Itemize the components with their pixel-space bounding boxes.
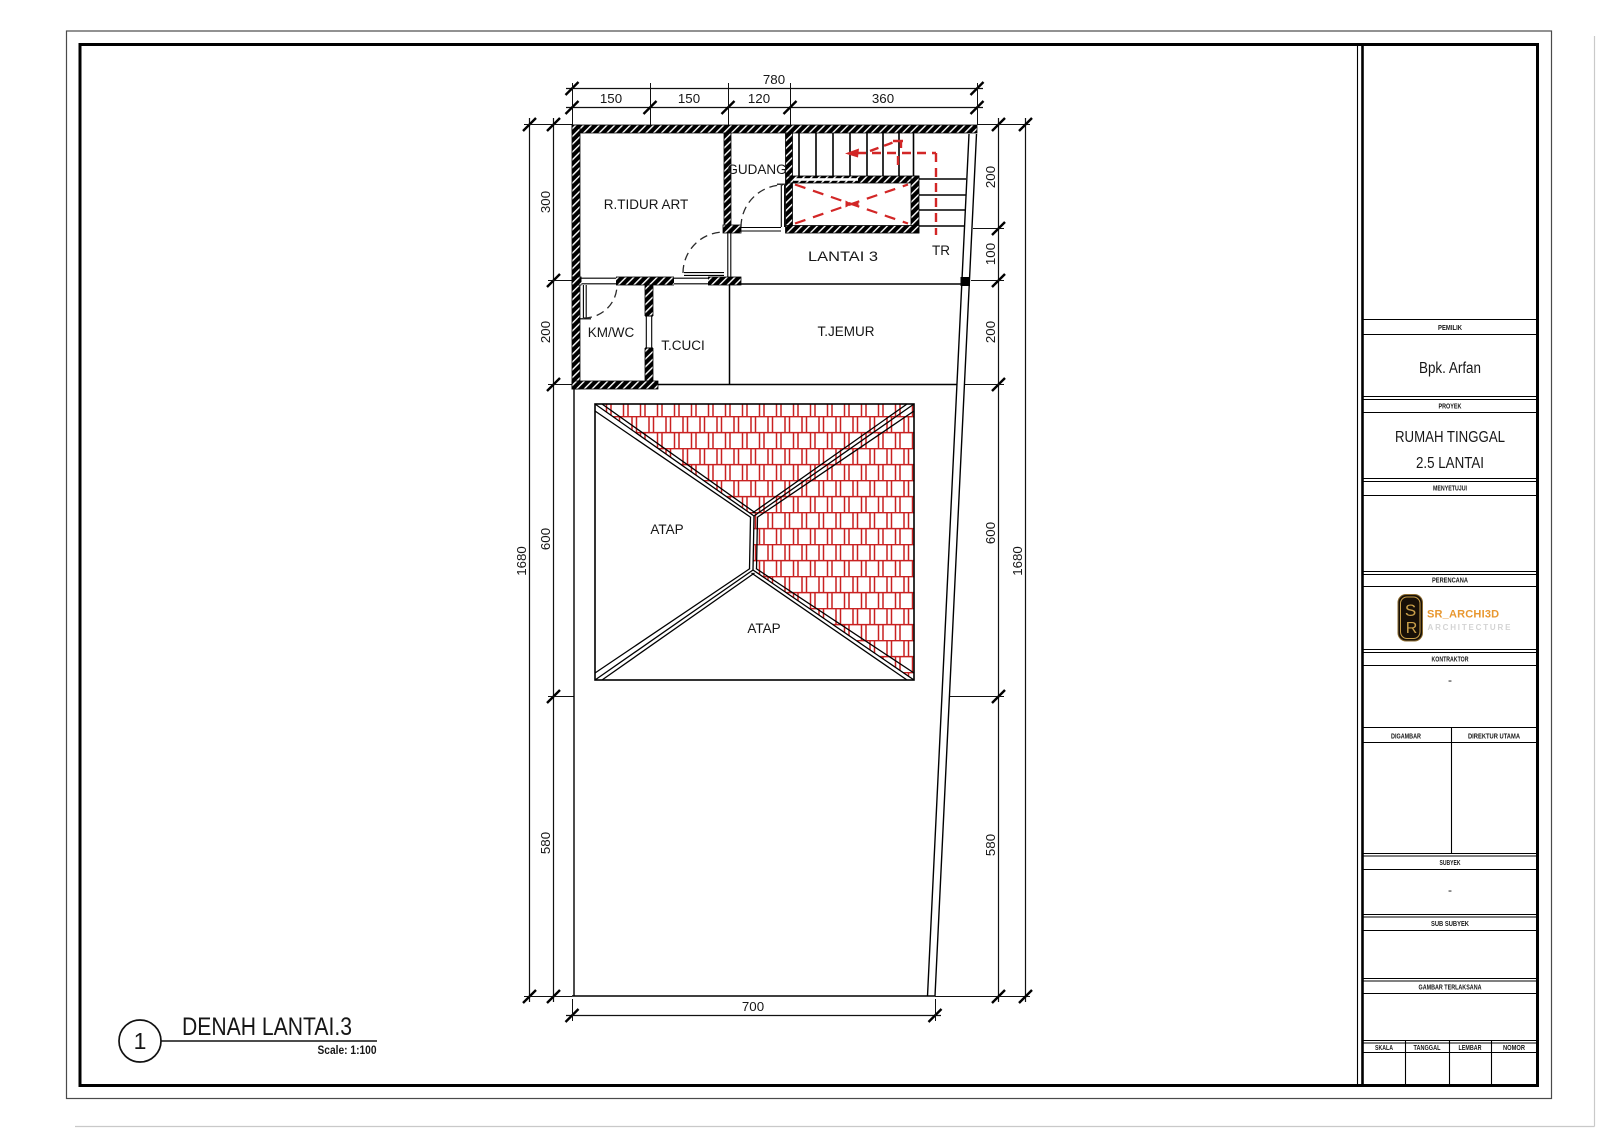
svg-text:T.JEMUR: T.JEMUR	[818, 324, 875, 339]
svg-text:780: 780	[763, 72, 785, 87]
svg-text:NOMOR: NOMOR	[1503, 1043, 1525, 1052]
svg-text:300: 300	[538, 191, 553, 213]
svg-text:TR: TR	[932, 243, 950, 258]
svg-text:1: 1	[134, 1028, 147, 1054]
svg-text:200: 200	[538, 321, 553, 343]
svg-text:SUBYEK: SUBYEK	[1440, 858, 1461, 867]
svg-text:1680: 1680	[1010, 546, 1025, 576]
svg-text:360: 360	[872, 91, 894, 106]
svg-text:KM/WC: KM/WC	[588, 325, 635, 340]
svg-text:-: -	[1448, 673, 1452, 687]
svg-text:DIGAMBAR: DIGAMBAR	[1391, 732, 1421, 741]
svg-text:KONTRAKTOR: KONTRAKTOR	[1432, 655, 1469, 664]
svg-text:T.CUCI: T.CUCI	[661, 338, 705, 353]
svg-text:SKALA: SKALA	[1375, 1043, 1393, 1052]
svg-text:100: 100	[983, 243, 998, 265]
svg-text:700: 700	[742, 999, 764, 1014]
svg-text:ATAP: ATAP	[650, 522, 683, 537]
svg-text:-: -	[1448, 883, 1452, 897]
svg-text:150: 150	[600, 91, 622, 106]
svg-text:2.5 LANTAI: 2.5 LANTAI	[1416, 455, 1484, 472]
svg-text:580: 580	[983, 834, 998, 856]
svg-text:LANTAI 3: LANTAI 3	[808, 249, 878, 264]
svg-text:GAMBAR TERLAKSANA: GAMBAR TERLAKSANA	[1419, 983, 1482, 992]
svg-text:600: 600	[538, 528, 553, 550]
svg-text:MENYETUJUI: MENYETUJUI	[1433, 484, 1467, 493]
svg-text:600: 600	[983, 522, 998, 544]
svg-text:LEMBAR: LEMBAR	[1459, 1043, 1482, 1052]
svg-text:580: 580	[538, 832, 553, 854]
svg-text:PROYEK: PROYEK	[1439, 402, 1462, 411]
svg-text:S: S	[1405, 601, 1416, 620]
svg-text:SUB SUBYEK: SUB SUBYEK	[1431, 919, 1469, 928]
svg-text:120: 120	[748, 91, 770, 106]
svg-text:R.TIDUR ART: R.TIDUR ART	[604, 197, 689, 212]
svg-text:RUMAH TINGGAL: RUMAH TINGGAL	[1395, 429, 1505, 446]
svg-text:DIREKTUR UTAMA: DIREKTUR UTAMA	[1468, 732, 1520, 741]
svg-text:R: R	[1406, 620, 1418, 637]
svg-text:1680: 1680	[514, 546, 529, 576]
svg-text:Bpk. Arfan: Bpk. Arfan	[1419, 360, 1481, 377]
svg-text:PEMILIK: PEMILIK	[1438, 323, 1462, 332]
svg-text:ATAP: ATAP	[747, 621, 780, 636]
svg-text:150: 150	[678, 91, 700, 106]
svg-text:SR_ARCHI3D: SR_ARCHI3D	[1427, 609, 1499, 621]
svg-text:200: 200	[983, 166, 998, 188]
svg-text:ARCHITECTURE: ARCHITECTURE	[1428, 623, 1513, 632]
svg-text:TANGGAL: TANGGAL	[1414, 1043, 1441, 1052]
svg-text:GUDANG: GUDANG	[727, 162, 786, 177]
svg-text:PERENCANA: PERENCANA	[1432, 576, 1468, 585]
svg-text:DENAH LANTAI.3: DENAH LANTAI.3	[182, 1013, 352, 1041]
svg-text:Scale: 1:100: Scale: 1:100	[318, 1045, 377, 1057]
svg-text:200: 200	[983, 321, 998, 343]
